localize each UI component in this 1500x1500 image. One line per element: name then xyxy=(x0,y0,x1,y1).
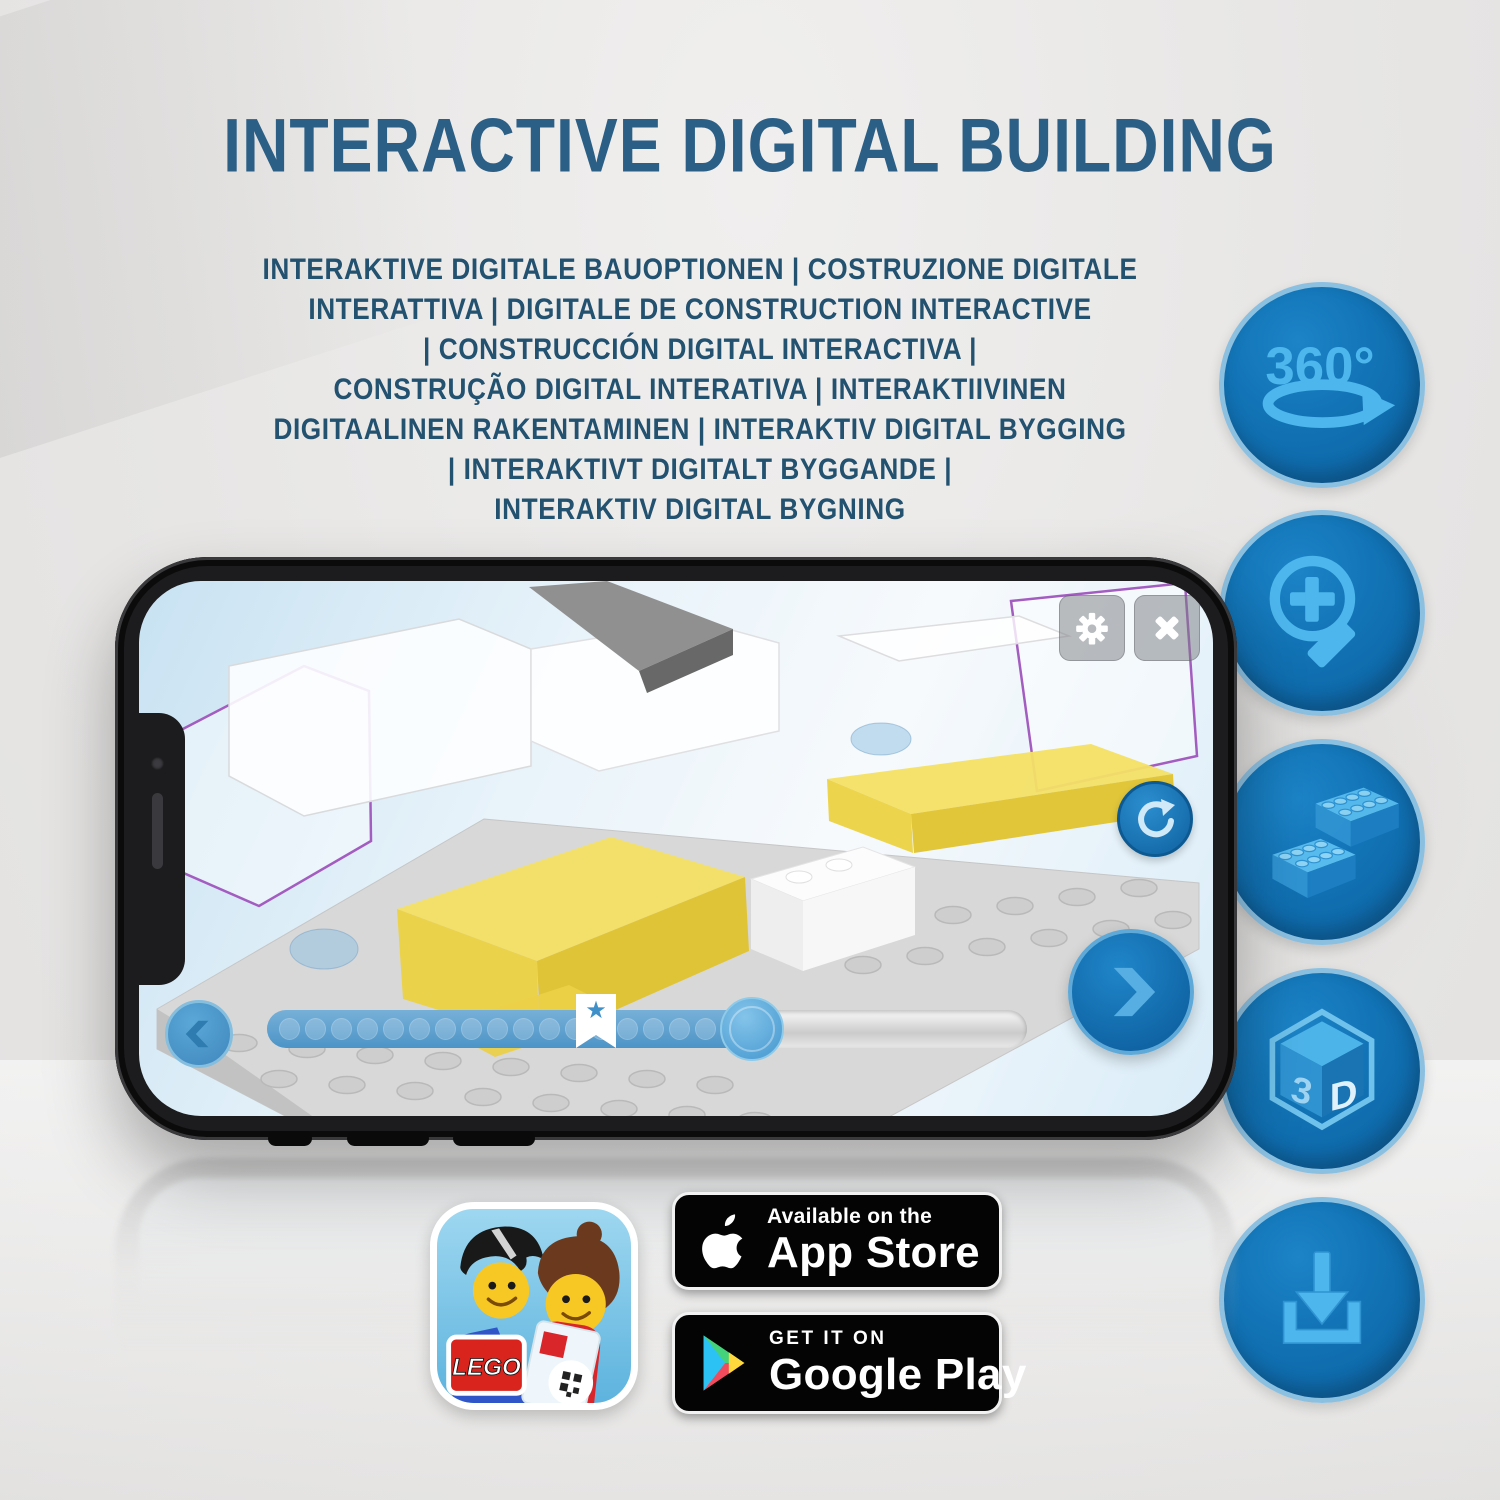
download-icon xyxy=(1242,1220,1402,1380)
phone-notch xyxy=(139,713,185,985)
progress-fill xyxy=(267,1010,759,1048)
subtitle-line: INTERAKTIV DIGITAL BYGNING xyxy=(167,490,1234,530)
360-rotation-icon: 360° xyxy=(1240,303,1405,468)
subtitle-line: INTERATTIVA | DIGITALE DE CONSTRUCTION I… xyxy=(167,290,1234,330)
app-store-label: App Store xyxy=(767,1229,980,1277)
subtitle-line: | INTERAKTIVT DIGITALT BYGGANDE | xyxy=(167,450,1234,490)
close-icon xyxy=(1144,605,1190,651)
step-dot xyxy=(383,1018,404,1040)
lego-app-icon[interactable]: LEGO xyxy=(430,1202,638,1410)
chevron-left-icon xyxy=(182,1017,216,1051)
step-dot xyxy=(513,1018,534,1040)
step-dot xyxy=(643,1018,664,1040)
progress-slider[interactable]: ★ xyxy=(267,1010,1027,1048)
3d-view-icon: 3 D xyxy=(1242,991,1402,1151)
speaker-slit xyxy=(152,793,163,869)
lego-brick-icon xyxy=(1242,762,1402,922)
360-label: 360° xyxy=(1265,336,1374,395)
app-store-badge[interactable]: Available on the App Store xyxy=(672,1192,1002,1290)
subtitle-block: INTERAKTIVE DIGITALE BAUOPTIONEN | COSTR… xyxy=(167,250,1234,530)
3d-right-label: D xyxy=(1330,1071,1358,1120)
step-dot xyxy=(617,1018,638,1040)
step-dot xyxy=(669,1018,690,1040)
mute-switch xyxy=(268,1131,312,1146)
volume-button xyxy=(347,1131,429,1146)
step-dot xyxy=(487,1018,508,1040)
apple-icon xyxy=(697,1210,749,1272)
step-dot xyxy=(331,1018,352,1040)
step-dot xyxy=(539,1018,560,1040)
step-dot xyxy=(695,1018,716,1040)
smartphone: ★ xyxy=(115,557,1237,1140)
subtitle-line: INTERAKTIVE DIGITALE BAUOPTIONEN | COSTR… xyxy=(167,250,1234,290)
slider-handle[interactable] xyxy=(720,997,784,1061)
google-play-badge[interactable]: GET IT ON Google Play xyxy=(672,1312,1002,1414)
gear-icon xyxy=(1069,605,1115,651)
step-dot xyxy=(279,1018,300,1040)
app-store-tagline: Available on the xyxy=(767,1205,980,1229)
page-title: INTERACTIVE DIGITAL BUILDING xyxy=(30,102,1470,190)
feature-zoom xyxy=(1219,510,1425,716)
chevron-right-icon xyxy=(1100,961,1162,1023)
subtitle-line: | CONSTRUCCIÓN DIGITAL INTERACTIVA | xyxy=(167,330,1234,370)
rotate-view-button[interactable] xyxy=(1117,781,1193,857)
settings-button[interactable] xyxy=(1059,595,1125,661)
feature-3d-view: 3 D xyxy=(1219,968,1425,1174)
marketing-page: { "header": { "title": "INTERACTIVE DIGI… xyxy=(0,0,1500,1500)
lego-app-art: LEGO xyxy=(437,1209,631,1403)
next-step-button[interactable] xyxy=(1068,929,1194,1055)
3d-left-label: 3 xyxy=(1291,1067,1312,1114)
volume-button xyxy=(453,1131,535,1146)
previous-step-button[interactable] xyxy=(165,1000,233,1068)
feature-360-rotation: 360° xyxy=(1219,282,1425,488)
subtitle-line: DIGITAALINEN RAKENTAMINEN | INTERAKTIV D… xyxy=(167,410,1234,450)
app-screen: ★ xyxy=(139,581,1213,1116)
step-dot xyxy=(305,1018,326,1040)
zoom-in-icon xyxy=(1242,533,1402,693)
feature-brick xyxy=(1219,739,1425,945)
feature-download xyxy=(1219,1197,1425,1403)
google-play-tagline: GET IT ON xyxy=(769,1327,1027,1351)
lego-logo-text: LEGO xyxy=(452,1354,521,1381)
close-button[interactable] xyxy=(1134,595,1200,661)
step-dot xyxy=(435,1018,456,1040)
rotate-icon xyxy=(1133,797,1177,841)
camera-dot xyxy=(151,757,164,770)
step-dot xyxy=(409,1018,430,1040)
step-dot xyxy=(461,1018,482,1040)
step-dot xyxy=(357,1018,378,1040)
google-play-label: Google Play xyxy=(769,1351,1027,1399)
google-play-icon xyxy=(697,1333,751,1393)
subtitle-line: CONSTRUÇÃO DIGITAL INTERATIVA | INTERAKT… xyxy=(167,370,1234,410)
